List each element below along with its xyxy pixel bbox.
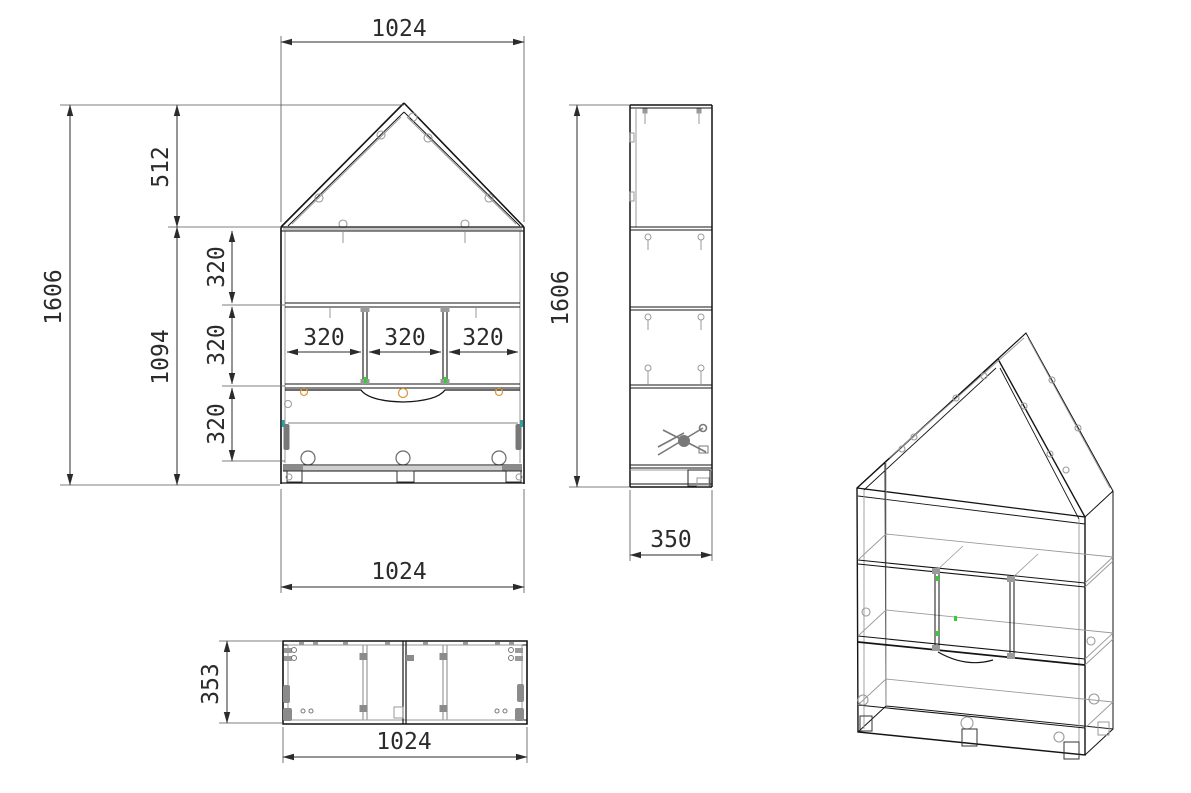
side-dimensions — [569, 105, 712, 561]
dim-front-compartment-2: 320 — [384, 325, 426, 351]
bottom-view: 353 1024 — [198, 641, 527, 763]
technical-drawing: 1024 1606 512 1094 320 320 320 320 320 3… — [0, 0, 1191, 793]
bottom-dimension-labels: 353 1024 — [198, 663, 432, 755]
iso-connectors — [932, 568, 1015, 659]
dim-front-bottom-width: 1024 — [371, 559, 426, 585]
dim-front-total-height: 1606 — [41, 269, 67, 324]
dim-front-compartment-1: 320 — [303, 325, 345, 351]
front-dimension-labels: 1024 1606 512 1094 320 320 320 320 320 3… — [41, 16, 504, 585]
dim-front-roof-height: 512 — [148, 146, 174, 188]
bottom-dimensions — [219, 641, 527, 763]
front-carcass — [281, 227, 524, 484]
front-roof — [281, 103, 524, 228]
side-drawer-slide — [658, 425, 708, 456]
side-dimension-labels: 1606 350 — [548, 270, 692, 553]
dim-front-top-width: 1024 — [371, 16, 426, 42]
dim-front-compartment-3: 320 — [462, 325, 504, 351]
dim-side-depth: 350 — [650, 527, 692, 553]
iso-screws — [858, 373, 1099, 742]
dim-front-row-3: 320 — [204, 403, 230, 445]
side-fittings — [643, 109, 704, 385]
dim-side-height: 1606 — [548, 270, 574, 325]
dim-front-body-height: 1094 — [148, 329, 174, 384]
front-dimensions — [60, 36, 524, 593]
front-view: 1024 1606 512 1094 320 320 320 320 320 3… — [41, 16, 524, 593]
drawing-canvas: 1024 1606 512 1094 320 320 320 320 320 3… — [0, 0, 1191, 793]
front-drawer — [282, 389, 524, 466]
isometric-view — [857, 333, 1113, 759]
dim-bottom-depth: 353 — [198, 663, 224, 705]
side-view: 1606 350 — [548, 105, 712, 561]
bottom-carcass — [283, 641, 527, 724]
dim-front-row-1: 320 — [204, 246, 230, 288]
iso-feet — [860, 716, 1109, 759]
dim-front-row-2: 320 — [204, 324, 230, 366]
front-base — [281, 465, 524, 483]
iso-shelves — [858, 534, 1113, 728]
dim-bottom-width: 1024 — [376, 729, 431, 755]
